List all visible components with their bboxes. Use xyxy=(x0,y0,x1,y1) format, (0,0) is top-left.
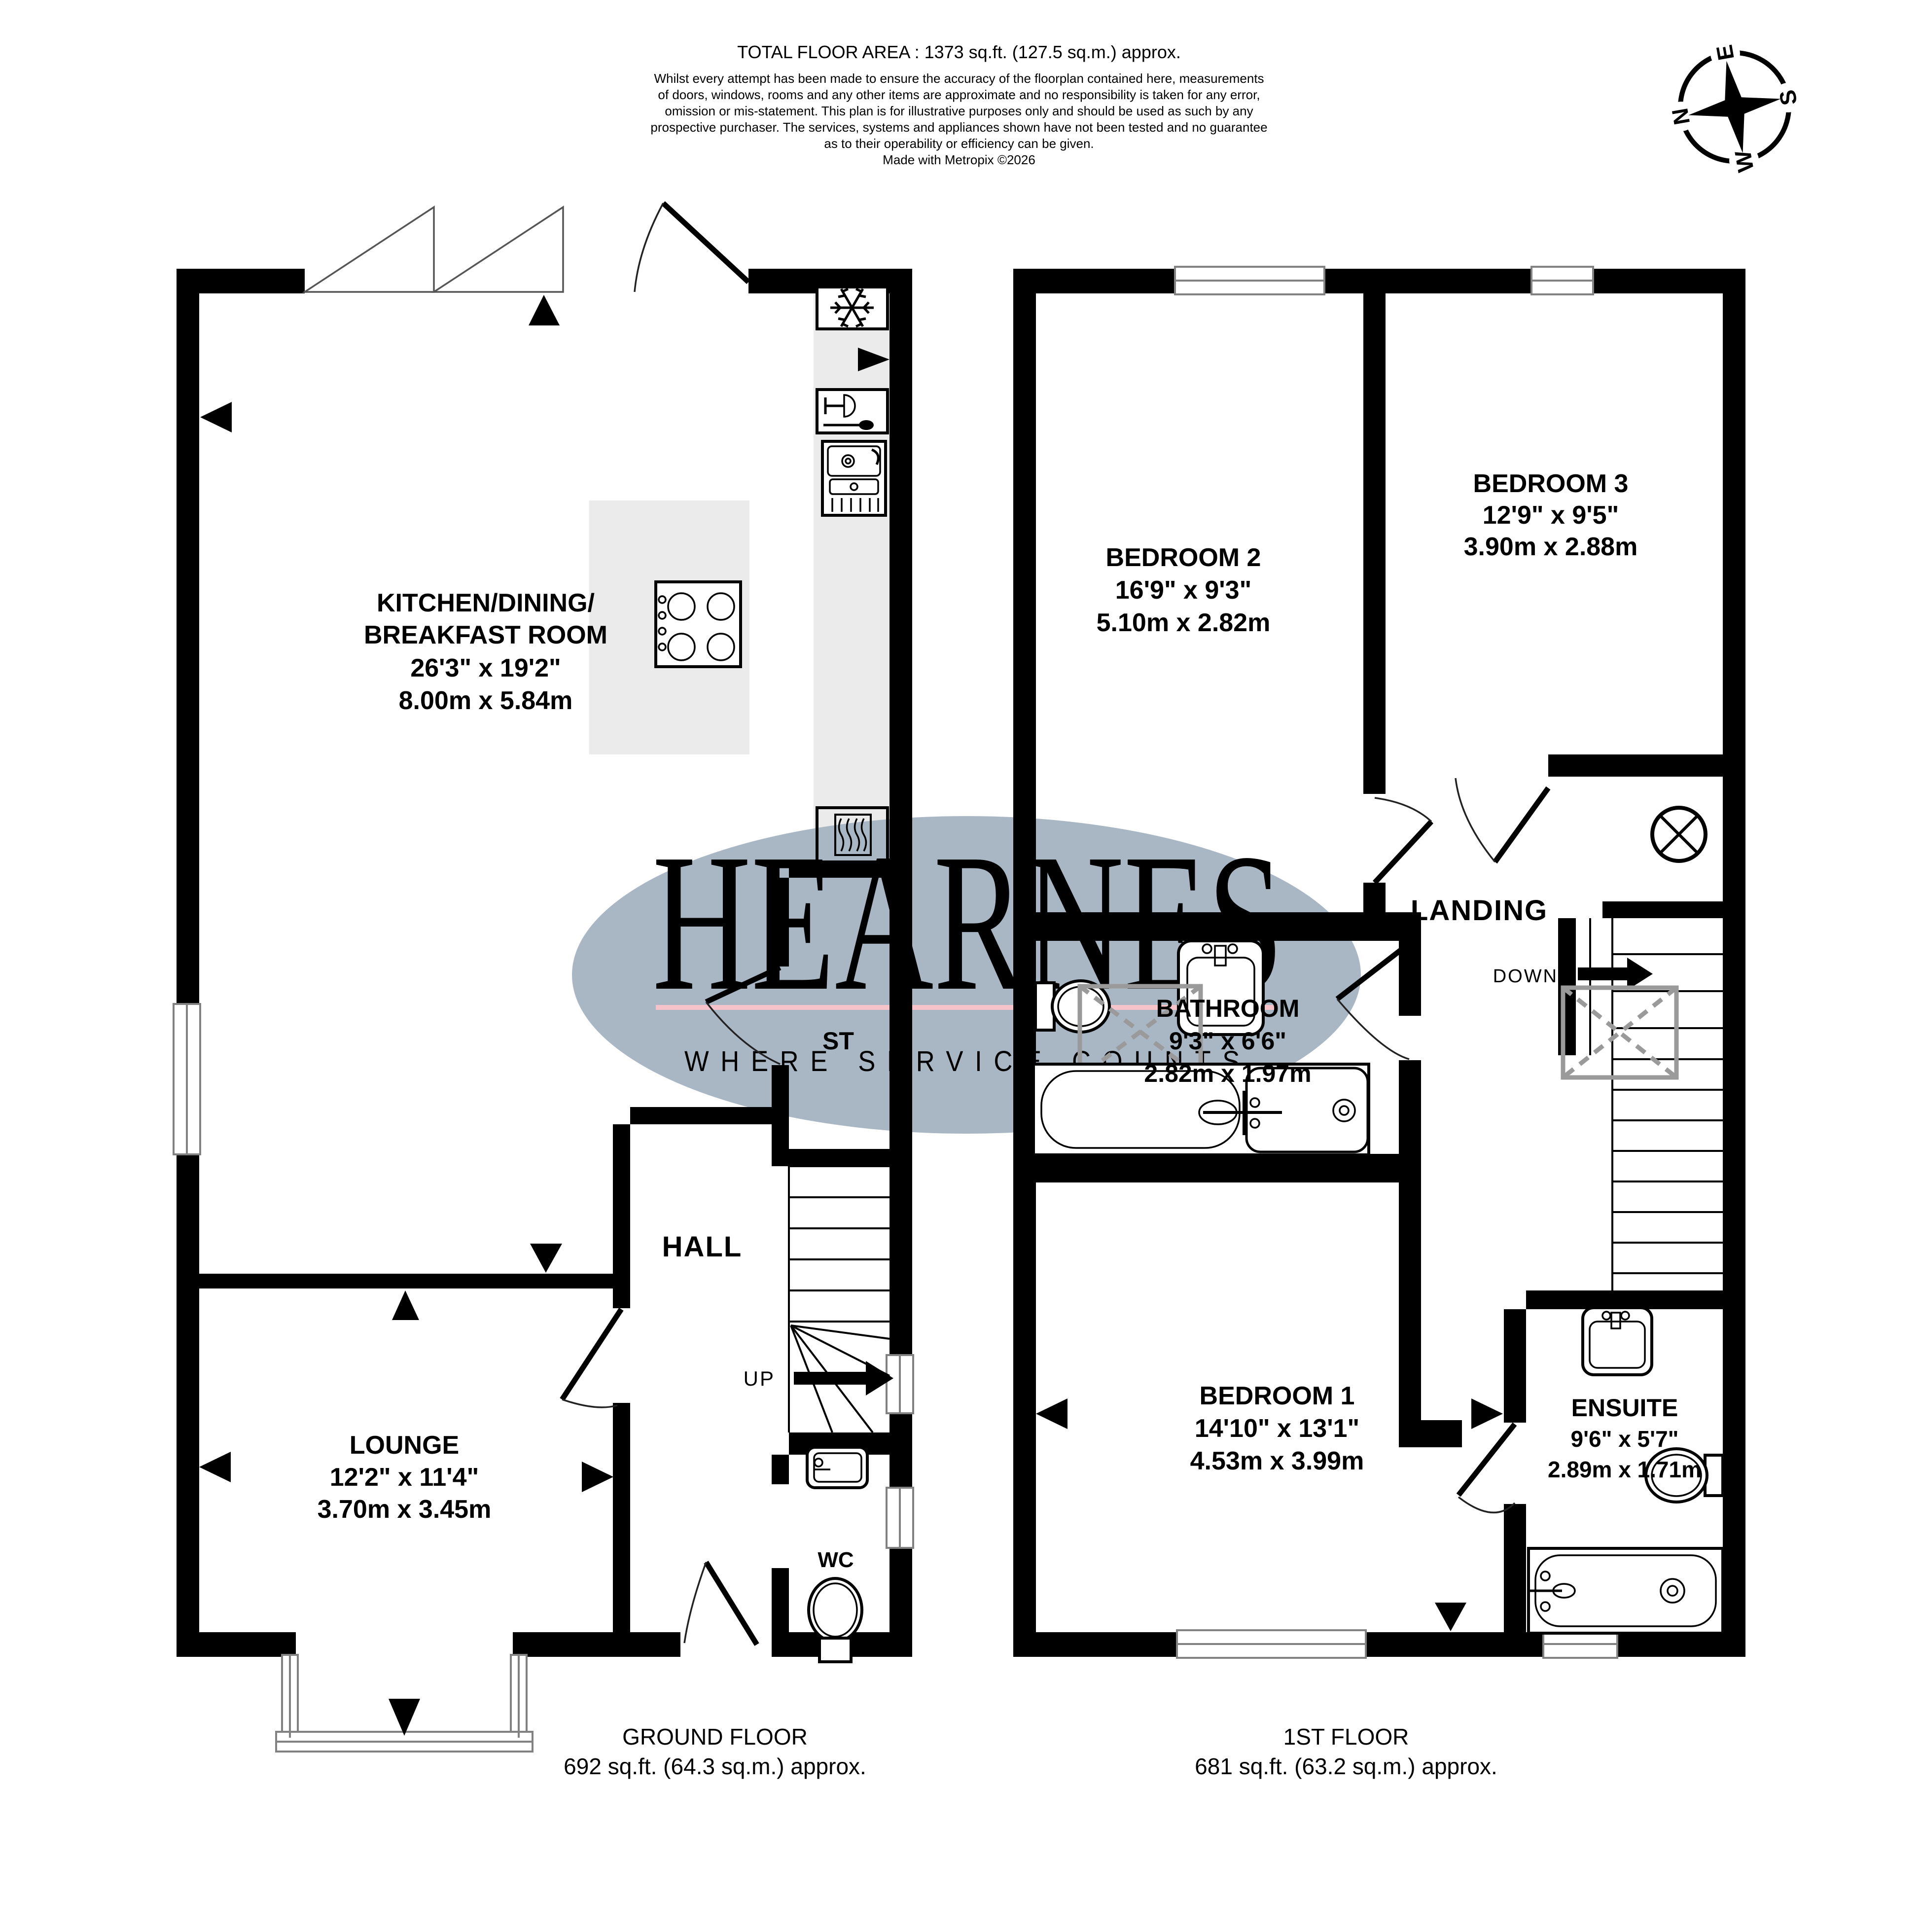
wall-segment xyxy=(1013,1632,1177,1657)
wall-segment xyxy=(772,1568,789,1632)
landing-label: LANDING xyxy=(1411,894,1548,927)
ensuite-basin-icon xyxy=(1583,1308,1652,1375)
wall-segment xyxy=(177,1274,613,1288)
disclaimer-line: prospective purchaser. The services, sys… xyxy=(650,120,1267,135)
total-floor-area: TOTAL FLOOR AREA : 1373 sq.ft. (127.5 sq… xyxy=(737,42,1181,62)
wall-segment xyxy=(1504,1309,1526,1423)
wc-label: WC xyxy=(818,1548,854,1572)
bedroom1-label: BEDROOM 1 xyxy=(1200,1382,1355,1410)
first-floor-title: 1ST FLOOR xyxy=(1283,1724,1409,1750)
bathroom-dims-metric: 2.82m x 1.97m xyxy=(1144,1060,1311,1087)
kitchen-dims-metric: 8.00m x 5.84m xyxy=(399,686,573,715)
wall-segment xyxy=(772,1149,889,1166)
kitchen-label: BREAKFAST ROOM xyxy=(364,621,607,649)
kitchen-worktop xyxy=(814,293,889,863)
first-floor-area: 681 sq.ft. (63.2 sq.m.) approx. xyxy=(1195,1753,1497,1779)
made-with-credit: Made with Metropix ©2026 xyxy=(883,152,1035,167)
wall-segment xyxy=(613,1124,630,1308)
floorplan-canvas: HEARNES WHERE SERVICE COUNTS xyxy=(0,0,1921,1932)
wall-segment xyxy=(789,863,889,878)
wall-segment xyxy=(1035,1154,1421,1182)
wall-segment xyxy=(1723,269,1745,1657)
lounge-dims-imperial: 12'2" x 11'4" xyxy=(330,1463,479,1492)
bedroom3-dims-imperial: 12'9" x 9'5" xyxy=(1483,501,1619,530)
bedroom1-dims-imperial: 14'10" x 13'1" xyxy=(1195,1414,1359,1443)
disclaimer-line: of doors, windows, rooms and any other i… xyxy=(658,87,1260,102)
wall-segment xyxy=(1399,1182,1421,1447)
ceiling-light-icon xyxy=(1652,808,1706,861)
wall-segment xyxy=(1363,293,1386,794)
wall-segment xyxy=(1013,269,1175,293)
wall-segment xyxy=(1324,269,1531,293)
hob-icon xyxy=(656,582,741,667)
bay-opening xyxy=(296,1632,513,1657)
window xyxy=(887,1488,913,1548)
lounge-label: LOUNGE xyxy=(350,1431,459,1460)
wall-segment xyxy=(613,1403,630,1632)
disclaimer-line: Whilst every attempt has been made to en… xyxy=(654,71,1264,86)
wall-segment xyxy=(889,269,912,1657)
bathroom-label: BATHROOM xyxy=(1156,995,1300,1022)
wall-segment xyxy=(772,1065,789,1149)
wall-segment xyxy=(177,269,305,293)
ground-floor-title: GROUND FLOOR xyxy=(622,1724,808,1750)
up-arrow-shaft xyxy=(794,1372,868,1385)
kitchen-dims-imperial: 26'3" x 19'2" xyxy=(410,654,561,682)
disclaimer-line: as to their operability or efficiency ca… xyxy=(824,136,1094,151)
wall-segment xyxy=(1399,1420,1462,1447)
window xyxy=(887,1355,913,1413)
bedroom3-dims-metric: 3.90m x 2.88m xyxy=(1464,533,1638,561)
wall-segment xyxy=(772,1455,789,1484)
ensuite-bath-icon xyxy=(1529,1548,1723,1633)
wall-segment xyxy=(1548,754,1745,777)
ground-floor-area: 692 sq.ft. (64.3 sq.m.) approx. xyxy=(564,1753,866,1779)
window xyxy=(1175,267,1324,294)
bedroom3-label: BEDROOM 3 xyxy=(1473,469,1629,498)
wall-segment xyxy=(177,269,199,1657)
lounge-dims-metric: 3.70m x 3.45m xyxy=(318,1495,492,1524)
ensuite-dims-metric: 2.89m x 1.71m xyxy=(1548,1457,1702,1482)
bedroom2-dims-imperial: 16'9" x 9'3" xyxy=(1115,576,1251,605)
store-label: ST xyxy=(822,1027,854,1055)
wall-segment xyxy=(1617,1632,1745,1657)
wall-segment xyxy=(1593,269,1745,293)
sink-icon xyxy=(822,441,886,515)
wall-segment xyxy=(1366,1632,1543,1657)
wall-segment xyxy=(772,878,789,966)
bathroom-toilet-icon xyxy=(1035,981,1109,1032)
ensuite-label: ENSUITE xyxy=(1571,1394,1678,1422)
bathroom-dims-imperial: 9'3" x 6'6" xyxy=(1169,1027,1286,1055)
window xyxy=(174,1004,200,1154)
bedroom1-dims-metric: 4.53m x 3.99m xyxy=(1190,1447,1364,1475)
wall-segment xyxy=(1504,1504,1526,1632)
down-arrow-shaft xyxy=(1578,967,1630,980)
dishwasher-icon xyxy=(817,390,888,433)
window xyxy=(1177,1630,1366,1658)
kitchen-label: KITCHEN/DINING/ xyxy=(377,589,595,617)
wall-segment xyxy=(1602,901,1745,918)
wc-basin-icon xyxy=(807,1447,867,1488)
disclaimer-line: omission or mis-statement. This plan is … xyxy=(665,104,1253,118)
fridge-icon xyxy=(817,287,888,329)
hall-label: HALL xyxy=(662,1231,743,1263)
front-door-opening xyxy=(680,1632,772,1657)
wall-segment xyxy=(1035,912,1421,941)
down-label: DOWN xyxy=(1493,966,1558,987)
up-label: UP xyxy=(744,1367,775,1390)
ensuite-dims-imperial: 9'6" x 5'7" xyxy=(1571,1426,1679,1452)
bedroom2-dims-metric: 5.10m x 2.82m xyxy=(1097,608,1271,637)
bedroom2-label: BEDROOM 2 xyxy=(1106,543,1261,572)
window xyxy=(1531,267,1593,294)
wall-segment xyxy=(630,1107,789,1124)
wall-segment xyxy=(1013,269,1036,1657)
wall-segment xyxy=(177,1632,912,1657)
